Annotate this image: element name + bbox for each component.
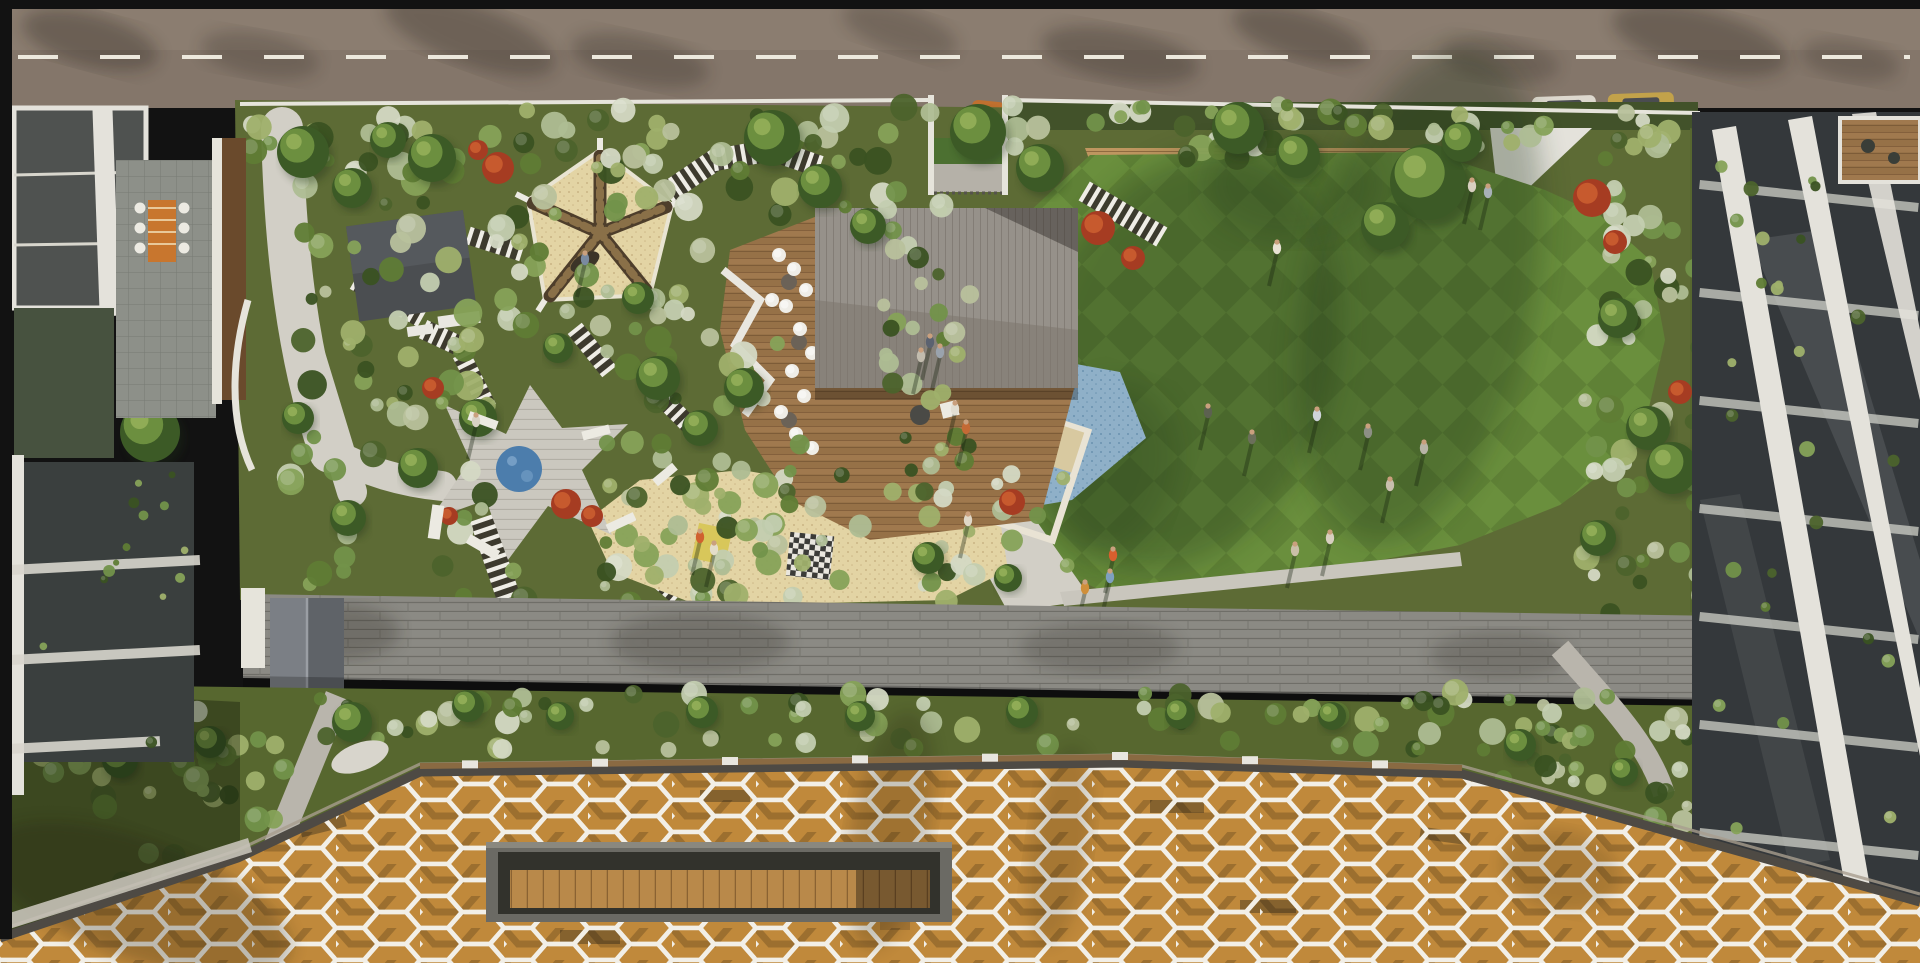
person-head	[1249, 429, 1254, 434]
shrub	[307, 561, 333, 587]
tree-canopy-top	[288, 407, 298, 417]
tree-shadow	[1430, 631, 1570, 679]
shrub	[635, 186, 659, 210]
tree-canopy-top	[960, 112, 977, 129]
shrub	[1542, 703, 1562, 723]
shrub-highlight	[645, 155, 656, 166]
shrub-highlight	[936, 443, 944, 451]
shrub-highlight	[602, 286, 610, 294]
aerial-garden-render	[0, 0, 1920, 963]
red-bush-highlight	[1577, 183, 1598, 204]
tree-canopy-top	[1615, 762, 1623, 770]
shrub-highlight	[399, 386, 408, 395]
person-head	[711, 540, 716, 545]
person-head	[937, 343, 942, 348]
rail-post-cap	[1242, 756, 1258, 764]
shrub	[475, 502, 489, 516]
shrub	[597, 562, 616, 581]
shrub	[1479, 718, 1506, 745]
shrub	[1771, 282, 1784, 295]
shrub-highlight	[1618, 557, 1629, 568]
shrub-highlight	[601, 582, 607, 588]
tree-canopy-top	[754, 118, 771, 135]
red-bush-highlight	[1002, 492, 1016, 506]
tree-canopy-top	[1634, 413, 1647, 426]
person-head	[927, 333, 932, 338]
shrub-highlight	[1333, 106, 1342, 115]
tree-canopy-top	[692, 701, 702, 711]
shrub	[1660, 268, 1676, 284]
dining-set	[135, 200, 190, 262]
red-bush-highlight	[1670, 382, 1683, 395]
shrub	[420, 711, 437, 728]
shrub	[298, 370, 327, 399]
person-head	[1421, 439, 1426, 444]
tree-canopy-top	[336, 505, 347, 516]
tree-canopy-top	[548, 338, 557, 347]
shrub-highlight	[1536, 117, 1547, 128]
tree-canopy-top	[1403, 155, 1426, 178]
shrub-highlight	[513, 235, 522, 244]
tree-canopy-top	[1012, 701, 1022, 711]
tree-canopy-top	[688, 415, 699, 426]
shrub	[1573, 687, 1595, 709]
shrub-highlight	[1574, 726, 1586, 738]
shrub	[40, 642, 48, 650]
shrub	[621, 431, 644, 454]
shrub-highlight	[1588, 464, 1598, 474]
shrub	[1570, 736, 1580, 746]
shrub	[314, 692, 327, 705]
tree-shadow	[610, 612, 790, 672]
person-head	[1292, 541, 1297, 546]
top-frame-bar	[0, 0, 1920, 9]
shrub	[918, 505, 940, 527]
shrub	[1418, 722, 1441, 745]
shrub	[128, 497, 139, 508]
shrub	[765, 515, 783, 533]
tree-canopy-top	[628, 287, 638, 297]
tree-canopy-top	[806, 171, 819, 184]
shrub	[1777, 717, 1789, 729]
shrub-highlight	[604, 479, 612, 487]
shrub-highlight	[716, 560, 725, 569]
shrub-highlight	[293, 445, 305, 457]
shrub	[160, 501, 169, 510]
shrub-highlight	[1347, 115, 1360, 128]
tree-canopy-top	[644, 363, 657, 376]
shrub	[916, 697, 930, 711]
shrub-highlight	[924, 458, 934, 468]
shrub	[731, 461, 750, 480]
shrub	[879, 353, 899, 373]
shrub-highlight	[280, 471, 295, 486]
left-shade-garden	[14, 308, 114, 458]
gable-structure	[270, 598, 344, 690]
shrub-highlight	[581, 699, 589, 707]
entry-landing	[934, 164, 1002, 192]
person-head	[918, 347, 923, 352]
tree-canopy-top	[339, 708, 351, 720]
rail-post-cap	[1112, 752, 1128, 760]
terrace-furniture	[1888, 152, 1900, 164]
shrub-highlight	[1502, 122, 1509, 129]
shrub-highlight	[901, 433, 908, 440]
shrub	[306, 293, 318, 305]
stool-highlight	[789, 264, 797, 272]
shrub-highlight	[557, 140, 570, 153]
tree-canopy-top	[1024, 151, 1038, 165]
person-head	[473, 412, 478, 417]
shrub-highlight	[1667, 709, 1680, 722]
shrub-highlight	[101, 576, 105, 580]
shrub	[1477, 743, 1490, 756]
shrub	[1210, 702, 1230, 722]
shrub-highlight	[823, 105, 839, 121]
red-bush-highlight	[485, 155, 503, 173]
red-bush-highlight	[554, 492, 571, 509]
shrub	[668, 515, 688, 535]
tree-canopy-top	[458, 695, 468, 705]
shrub	[622, 145, 646, 169]
tree-canopy-top	[850, 706, 859, 715]
shrub	[357, 361, 374, 378]
tree-canopy-top	[286, 134, 302, 150]
person-head	[1110, 546, 1115, 551]
shrub-highlight	[1371, 117, 1385, 131]
shrub-highlight	[1604, 459, 1617, 472]
shrub-highlight	[797, 702, 806, 711]
shrub-highlight	[1683, 801, 1689, 807]
shrub	[291, 328, 315, 352]
tree-canopy-top	[1605, 304, 1617, 316]
tree-canopy-top	[856, 213, 867, 224]
shrub	[652, 433, 672, 453]
shrub	[1715, 160, 1727, 172]
shrub	[914, 277, 927, 290]
shrub	[454, 299, 483, 328]
shrub-highlight	[1637, 555, 1645, 563]
shrub	[1586, 436, 1607, 457]
person-head	[1274, 239, 1279, 244]
shrub	[1001, 529, 1023, 551]
shrub-highlight	[1267, 705, 1279, 717]
shrub-highlight	[1415, 692, 1426, 703]
stool-highlight	[774, 250, 782, 258]
shrub-highlight	[732, 162, 743, 173]
deck-table	[781, 274, 797, 290]
shrub-highlight	[1883, 655, 1890, 662]
shrub	[599, 435, 615, 451]
shrub	[607, 193, 628, 214]
shrub	[600, 345, 614, 359]
shrub-highlight	[1402, 698, 1409, 705]
shrub	[1615, 506, 1629, 520]
shrub-highlight	[520, 711, 527, 718]
tree-canopy-top	[1586, 525, 1597, 536]
shrub-highlight	[1762, 603, 1767, 608]
shrub-highlight	[1139, 688, 1147, 696]
shrub	[645, 566, 664, 585]
shrub	[829, 570, 849, 590]
shrub-highlight	[909, 248, 921, 260]
shrub	[712, 453, 730, 471]
stool-highlight	[795, 324, 803, 332]
shrub	[1451, 106, 1468, 123]
shrub-highlight	[1852, 311, 1860, 319]
shrub-highlight	[1599, 397, 1614, 412]
shrub	[1559, 754, 1572, 767]
shrub-highlight	[932, 195, 945, 208]
shrub-highlight	[843, 683, 858, 698]
tree-canopy-top	[1655, 450, 1671, 466]
shrub-highlight	[835, 468, 844, 477]
shrub	[933, 489, 952, 508]
shrub-highlight	[1885, 812, 1892, 819]
shrub	[1615, 741, 1636, 762]
shrub	[770, 336, 785, 351]
shrub-highlight	[440, 703, 454, 717]
shrub-highlight	[1433, 698, 1443, 708]
shrub-highlight	[698, 470, 711, 483]
shrub-highlight	[946, 323, 958, 335]
shrub	[1756, 278, 1767, 289]
shrub	[250, 731, 267, 748]
tree-canopy-top	[551, 706, 559, 714]
void-rim-highlight	[486, 842, 952, 848]
tree-canopy-top	[376, 127, 387, 138]
shrub	[416, 196, 430, 210]
gable-slope-left	[270, 598, 307, 690]
shrub	[1725, 562, 1741, 578]
shrub	[160, 593, 167, 600]
tree-canopy-top	[416, 141, 430, 155]
stool-highlight	[781, 301, 789, 309]
shrub	[1174, 115, 1196, 137]
shrub	[347, 240, 361, 254]
shrub	[784, 465, 797, 478]
shrub-highlight	[1413, 743, 1421, 751]
shrub-highlight	[363, 443, 378, 458]
shrub-highlight	[1612, 133, 1621, 142]
shrub	[181, 547, 189, 555]
shrub	[804, 134, 822, 152]
rail-post-cap	[1372, 760, 1388, 768]
shrub-highlight	[1505, 695, 1512, 702]
shrub	[1086, 113, 1104, 131]
shrub	[1675, 724, 1690, 739]
shrub	[123, 543, 131, 551]
shrub	[596, 740, 610, 754]
terrace-furniture	[1861, 139, 1875, 153]
shrub-highlight	[380, 199, 387, 206]
rail-post-cap	[852, 755, 868, 763]
shrub	[1534, 755, 1556, 777]
shrub	[610, 162, 625, 177]
tree-canopy-top	[339, 174, 351, 186]
shrub-highlight	[515, 134, 527, 146]
shrub	[961, 285, 980, 304]
shrub-highlight	[589, 111, 601, 123]
shrub	[175, 573, 185, 583]
shrub-highlight	[399, 216, 415, 232]
shrub	[670, 475, 690, 495]
shrub	[505, 563, 522, 580]
shrub	[246, 771, 265, 790]
shrub	[1887, 455, 1899, 467]
shrub-highlight	[247, 808, 261, 822]
shrub	[653, 711, 679, 737]
shrub	[849, 515, 872, 538]
tree-canopy-top	[1510, 734, 1520, 744]
shrub	[883, 320, 900, 337]
rail-post-cap	[722, 757, 738, 765]
shrub-highlight	[534, 186, 548, 200]
shrub	[1623, 214, 1645, 236]
shrub-highlight	[326, 460, 338, 472]
shrub-highlight	[1570, 762, 1579, 771]
roof-terrace-deck	[1840, 118, 1920, 182]
shrub	[341, 320, 366, 345]
person-head	[1365, 423, 1370, 428]
shrub-highlight	[1068, 719, 1075, 726]
shrub	[113, 560, 119, 566]
shrub-highlight	[780, 484, 790, 494]
tree-canopy-top	[918, 547, 928, 557]
shrub-highlight	[504, 699, 515, 710]
shrub	[600, 536, 613, 549]
red-bush-highlight	[1123, 248, 1136, 261]
tree-canopy-top	[731, 374, 743, 386]
shrub	[169, 471, 176, 478]
red-bush-highlight	[1605, 232, 1618, 245]
shrub	[1744, 181, 1759, 196]
shrub-highlight	[1714, 700, 1721, 707]
shrub	[1664, 222, 1681, 239]
shrub	[831, 155, 845, 169]
shrub-highlight	[626, 686, 636, 696]
shrub	[1281, 99, 1293, 111]
shrub-highlight	[613, 100, 627, 114]
shrub	[139, 510, 149, 520]
person-head	[697, 528, 702, 533]
shrub	[317, 727, 335, 745]
shrub-highlight	[785, 588, 796, 599]
shrub	[420, 273, 440, 293]
person-head	[1485, 183, 1490, 188]
shrub	[1588, 569, 1600, 581]
shrub-highlight	[1864, 634, 1870, 640]
shrub-highlight	[798, 734, 809, 745]
person-head	[1082, 579, 1087, 584]
shrub-highlight	[1061, 559, 1069, 567]
gable-slope-right	[307, 598, 344, 690]
shrub	[905, 464, 918, 477]
shrub	[886, 181, 907, 202]
shrub-highlight	[1640, 126, 1653, 139]
shrub	[573, 287, 594, 308]
shrub	[1809, 515, 1823, 529]
shrub	[714, 488, 725, 499]
shrub	[1756, 232, 1770, 246]
shrub-highlight	[1375, 718, 1383, 726]
shrub-highlight	[1601, 690, 1610, 699]
shrub-highlight	[1727, 410, 1734, 417]
shrub	[389, 310, 408, 329]
shrub	[1428, 123, 1441, 136]
shrub-highlight	[1580, 394, 1587, 401]
rail-post-cap	[592, 759, 608, 767]
shrub	[530, 242, 549, 261]
tree-canopy-top	[405, 454, 417, 466]
red-bush-highlight	[424, 379, 436, 391]
shrub	[915, 482, 933, 500]
shrub	[882, 373, 903, 394]
person-head	[965, 511, 970, 516]
shrub	[1503, 134, 1520, 151]
shrub-highlight	[592, 162, 599, 169]
shrub	[294, 223, 314, 243]
shrub-highlight	[712, 144, 725, 157]
shrub	[558, 121, 575, 138]
shrub-highlight	[1039, 735, 1051, 747]
shrub	[921, 103, 940, 122]
shrub	[932, 268, 944, 280]
shrub-highlight	[1731, 215, 1739, 223]
shrub	[1669, 542, 1690, 563]
shrub	[1626, 259, 1653, 286]
shrub	[1137, 701, 1152, 716]
shrub-highlight	[550, 208, 557, 215]
shrub-highlight	[1569, 776, 1576, 783]
shrub	[681, 307, 695, 321]
shrub	[432, 555, 454, 577]
pool-ripple	[507, 456, 517, 466]
shrub	[1662, 287, 1678, 303]
shrub	[645, 326, 672, 353]
wall-end-cap	[241, 588, 265, 668]
shrub	[1617, 478, 1636, 497]
shrub	[885, 239, 906, 260]
shrub	[494, 288, 517, 311]
shrub	[135, 480, 142, 487]
shrub-highlight	[1648, 543, 1657, 552]
person-head	[952, 400, 957, 405]
shrub-highlight	[671, 286, 682, 297]
stool-highlight	[767, 295, 775, 303]
shrub-highlight	[817, 536, 823, 542]
sunken-bench-void	[486, 842, 952, 922]
shrub-highlight	[692, 239, 706, 253]
red-bush-highlight	[583, 507, 595, 519]
spa-pool	[496, 446, 542, 492]
shrub	[934, 384, 951, 401]
shrub	[266, 736, 285, 755]
shrub	[890, 94, 917, 121]
tiled-terrace	[116, 160, 216, 418]
shrub-highlight	[737, 520, 750, 533]
shrub	[246, 114, 272, 140]
shrub	[493, 739, 513, 759]
shrub	[661, 742, 677, 758]
shrub	[1029, 507, 1046, 524]
shrub	[1585, 774, 1606, 795]
shrub	[362, 268, 379, 285]
shrub-highlight	[1004, 97, 1016, 109]
shrub	[905, 321, 920, 336]
shrub-highlight	[807, 497, 819, 509]
shrub	[1645, 782, 1667, 804]
